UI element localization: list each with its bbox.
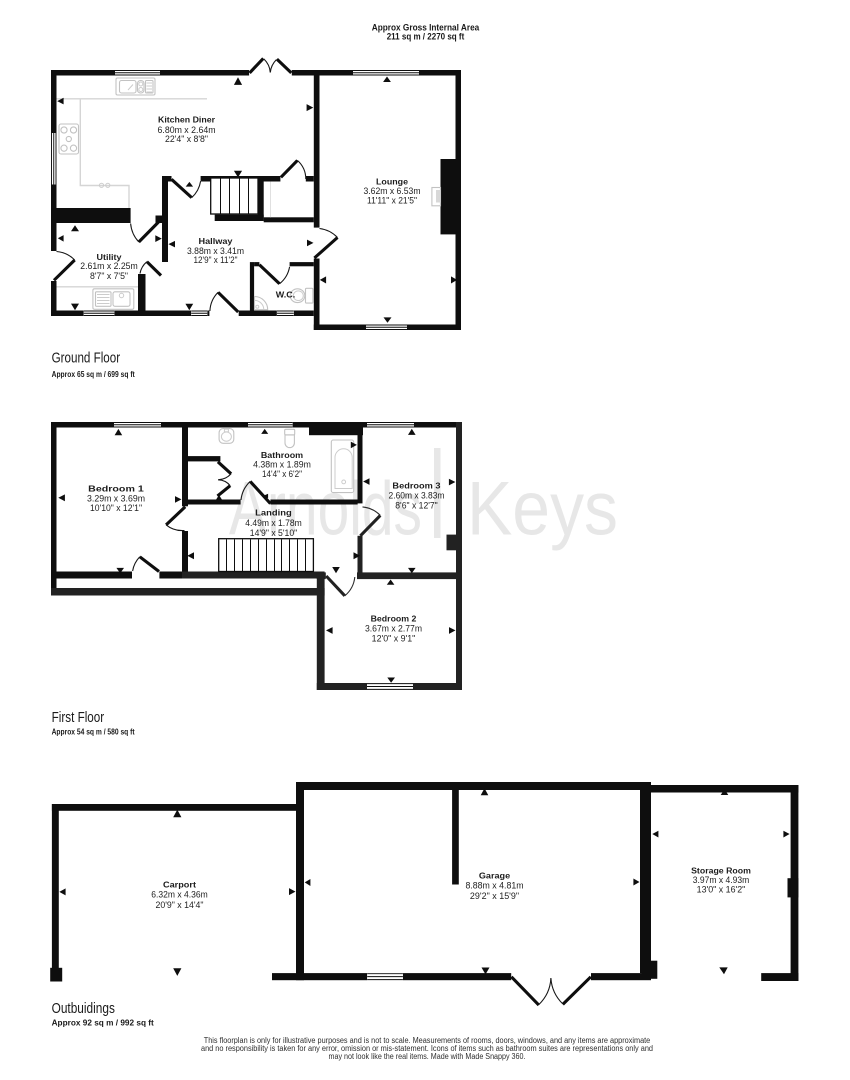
svg-text:Garage: Garage [479, 870, 511, 880]
svg-text:Bathroom: Bathroom [261, 450, 304, 460]
svg-text:12'0" x 9'1": 12'0" x 9'1" [372, 633, 416, 643]
svg-text:4.38m x 1.89m: 4.38m x 1.89m [253, 459, 311, 469]
svg-text:Approx 65 sq m / 699 sq ft: Approx 65 sq m / 699 sq ft [52, 369, 135, 379]
svg-text:8'7" x 7'5": 8'7" x 7'5" [90, 271, 128, 281]
svg-text:8.88m x 4.81m: 8.88m x 4.81m [465, 881, 523, 891]
svg-text:3.97m x 4.93m: 3.97m x 4.93m [693, 875, 749, 885]
svg-text:W.C.: W.C. [276, 289, 296, 299]
svg-text:6.32m x 4.36m: 6.32m x 4.36m [151, 890, 207, 900]
svg-text:20'9" x 14'4": 20'9" x 14'4" [156, 900, 204, 910]
svg-text:Keys: Keys [467, 467, 618, 552]
svg-text:13'0" x 16'2": 13'0" x 16'2" [697, 885, 746, 895]
svg-text:11'11" x 21'5": 11'11" x 21'5" [367, 196, 417, 206]
svg-text:Outbuidings: Outbuidings [52, 1001, 115, 1017]
svg-text:Approx 54 sq m / 580 sq ft: Approx 54 sq m / 580 sq ft [52, 727, 135, 737]
svg-text:Landing: Landing [255, 508, 292, 518]
svg-text:Approx 92 sq m / 992 sq ft: Approx 92 sq m / 992 sq ft [52, 1017, 154, 1027]
svg-text:Bedroom 3: Bedroom 3 [392, 481, 440, 491]
svg-text:2.61m x 2.25m: 2.61m x 2.25m [80, 261, 138, 271]
svg-text:Storage Room: Storage Room [691, 866, 751, 876]
svg-text:12'9" x 11'2": 12'9" x 11'2" [194, 255, 238, 265]
svg-text:3.67m x 2.77m: 3.67m x 2.77m [365, 623, 422, 633]
svg-text:may not look like the real ite: may not look like the real items. Made w… [329, 1052, 526, 1061]
svg-text:22'4" x 8'8": 22'4" x 8'8" [165, 134, 208, 144]
svg-text:10'10" x 12'1": 10'10" x 12'1" [90, 503, 142, 513]
svg-text:211 sq m / 2270 sq ft: 211 sq m / 2270 sq ft [387, 32, 465, 42]
svg-text:Carport: Carport [163, 879, 196, 889]
svg-text:Hallway: Hallway [199, 236, 233, 246]
svg-text:14'9" x 5'10": 14'9" x 5'10" [250, 528, 297, 538]
svg-text:Kitchen Diner: Kitchen Diner [158, 114, 216, 124]
svg-text:First Floor: First Floor [52, 710, 105, 726]
svg-text:29'2" x 15'9": 29'2" x 15'9" [470, 891, 519, 901]
svg-text:Lounge: Lounge [376, 176, 408, 186]
svg-text:Ground Floor: Ground Floor [52, 351, 121, 367]
svg-text:8'6" x 12'7": 8'6" x 12'7" [395, 501, 438, 511]
svg-text:Bedroom 2: Bedroom 2 [371, 613, 417, 623]
svg-text:Bedroom 1: Bedroom 1 [88, 483, 144, 493]
svg-text:4.49m x 1.78m: 4.49m x 1.78m [245, 518, 302, 528]
svg-text:3.29m x 3.69m: 3.29m x 3.69m [87, 493, 145, 503]
svg-text:2.60m x 3.83m: 2.60m x 3.83m [389, 491, 445, 501]
svg-text:14'4" x 6'2": 14'4" x 6'2" [262, 469, 302, 479]
